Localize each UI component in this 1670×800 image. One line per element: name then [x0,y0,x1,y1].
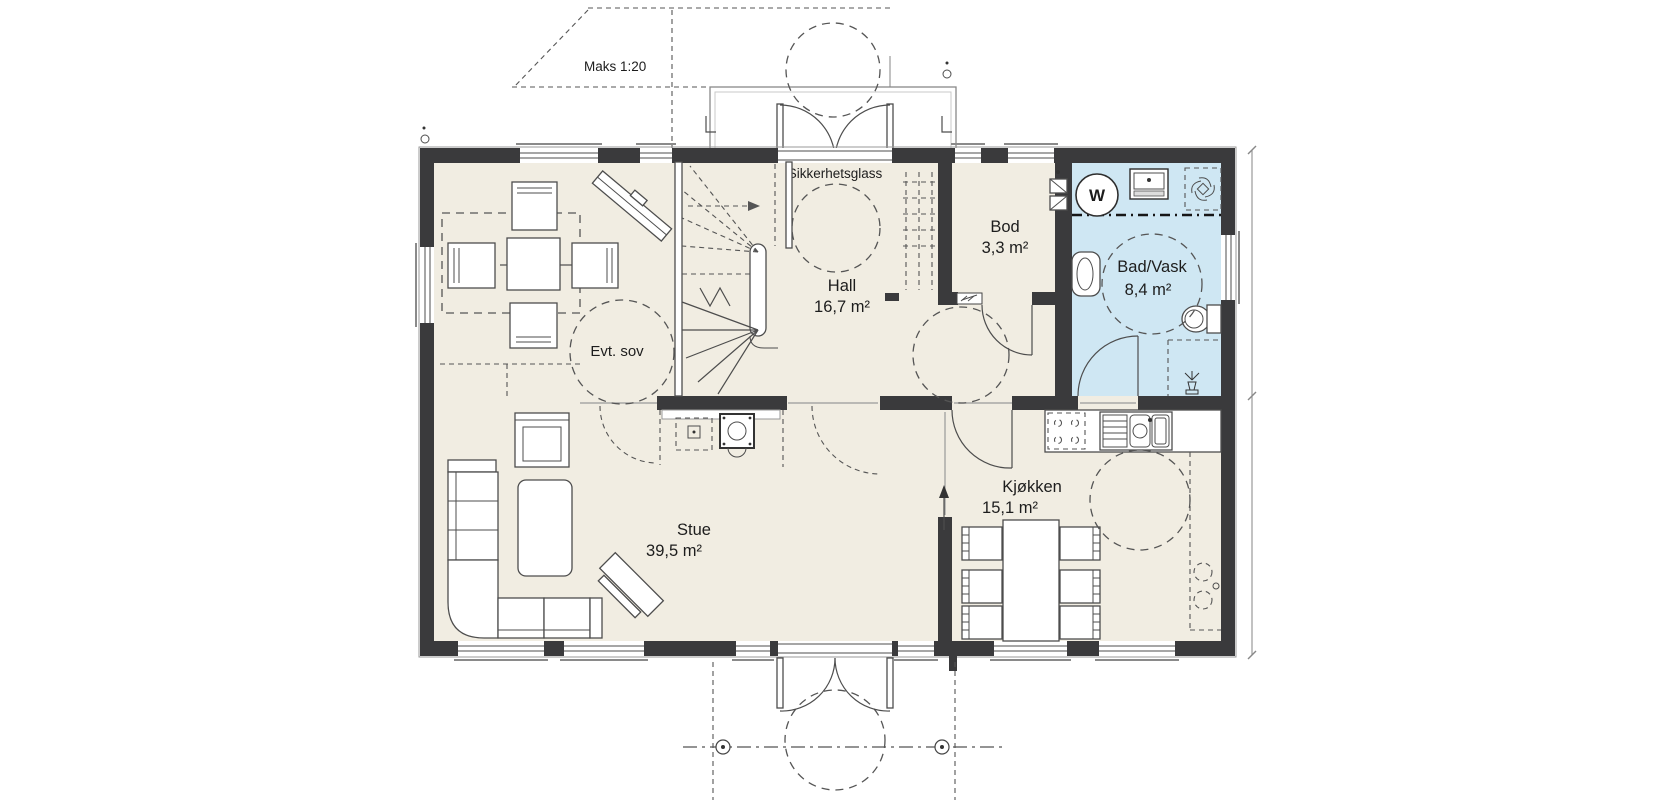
room-area-kjokken: 15,1 m² [982,499,1038,517]
wall-left [420,148,434,656]
room-label-bod: Bod [990,218,1019,236]
sink-icon [1072,252,1100,296]
dining-table [1003,520,1059,641]
wall-bod-left [938,162,952,305]
chair [572,243,618,288]
table [507,238,560,290]
dryer-icon [1130,169,1168,199]
vent-icon [957,293,982,304]
coffee-table [518,480,572,576]
safety-glass-label: Sikkerhetsglass [788,166,883,181]
entrance-door-opening [778,148,892,163]
room-label-stue: Stue [677,521,711,539]
kitchen-sink-icon [1100,412,1172,450]
room-label-evt-sov: Evt. sov [590,343,644,360]
chair [1060,527,1100,560]
room-area-hall: 16,7 m² [814,298,870,316]
toilet-icon [1182,305,1221,333]
washing-machine-label: W [1089,186,1106,205]
terrace-door-opening [778,641,892,656]
room-area-stue: 39,5 m² [646,542,702,560]
room-label-bad-vask: Bad/Vask [1117,258,1187,276]
room-area-bad-vask: 8,4 m² [1125,281,1172,299]
chair [962,527,1002,560]
axis-marker-icon [716,740,730,754]
chair [962,606,1002,639]
wall-stue-kitchen [938,517,952,641]
scale-note-label: Maks 1:20 [584,59,646,74]
chair [962,570,1002,603]
turning-circle-terrace [785,690,885,790]
axis-marker-icon [935,740,949,754]
room-label-hall: Hall [828,277,856,295]
dimension-line-right [1248,146,1256,659]
entrance-porch [421,23,956,163]
chair [1060,570,1100,603]
downpipe-icon [421,127,429,144]
chair [510,303,557,348]
room-label-kjokken: Kjøkken [1002,478,1062,496]
dining-table-set [962,520,1100,641]
wall-stub [885,293,899,301]
chair [512,182,557,230]
floor-plan-page: Maks 1:20 [0,0,1670,800]
armchair [515,413,569,467]
chair [448,243,495,288]
washing-machine-icon: W [1076,174,1118,216]
floor-plan-drawing: Maks 1:20 [0,0,1670,800]
terrace-post [949,656,957,671]
room-area-bod: 3,3 m² [982,239,1029,257]
terrace [683,658,1005,800]
terrace-double-door [777,658,893,711]
downpipe-icon [943,62,951,79]
chair [1060,606,1100,639]
